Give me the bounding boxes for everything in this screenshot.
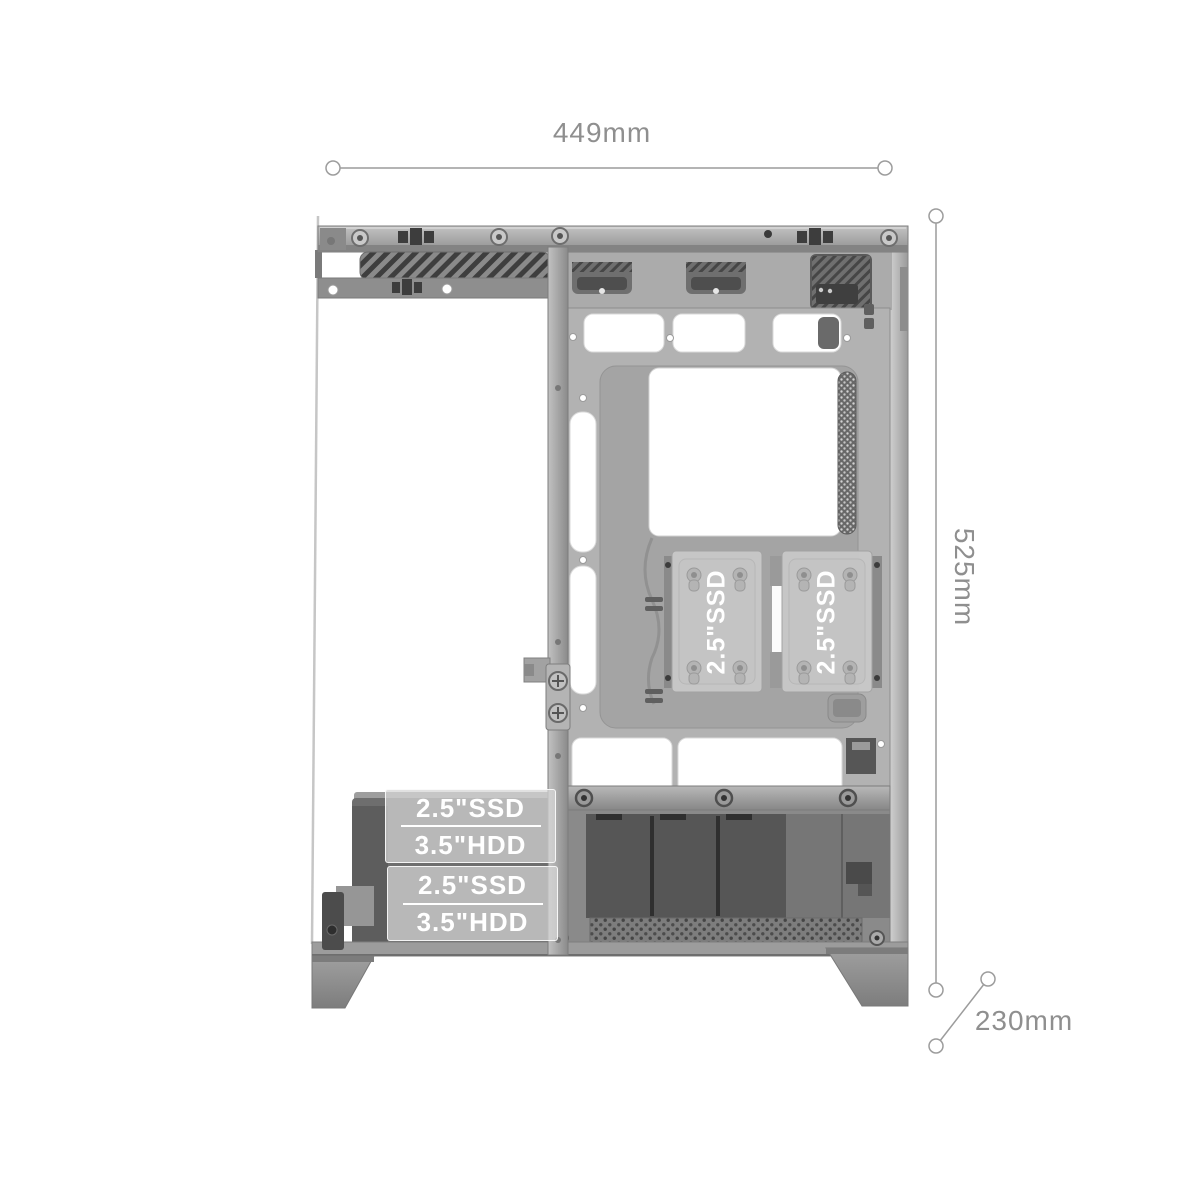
product-dimension-diagram: 449mm 525mm 230mm 2.5"SSD 2.5"SSD 2.5"SS… [0,0,1200,1200]
drive-bay-2: 2.5"SSD 3.5"HDD [387,866,558,941]
dimension-width-label: 449mm [553,117,651,149]
ssd-mount-1-label: 2.5"SSD [703,569,732,674]
dimension-depth-label: 230mm [975,1005,1073,1037]
dimension-line-width [326,161,892,175]
dimension-line-height [929,209,943,997]
drive-bay-1-hdd-label: 3.5"HDD [415,832,527,858]
drive-bay-1: 2.5"SSD 3.5"HDD [385,789,556,863]
dimension-height-label: 525mm [948,528,980,626]
drive-bay-2-hdd-label: 3.5"HDD [417,909,529,935]
drive-bay-1-ssd-label: 2.5"SSD [416,795,525,821]
drive-bay-2-ssd-label: 2.5"SSD [418,872,527,898]
ssd-mount-2-label: 2.5"SSD [813,569,842,674]
drive-bay-2-divider [403,903,543,905]
drive-bay-1-divider [401,825,541,827]
